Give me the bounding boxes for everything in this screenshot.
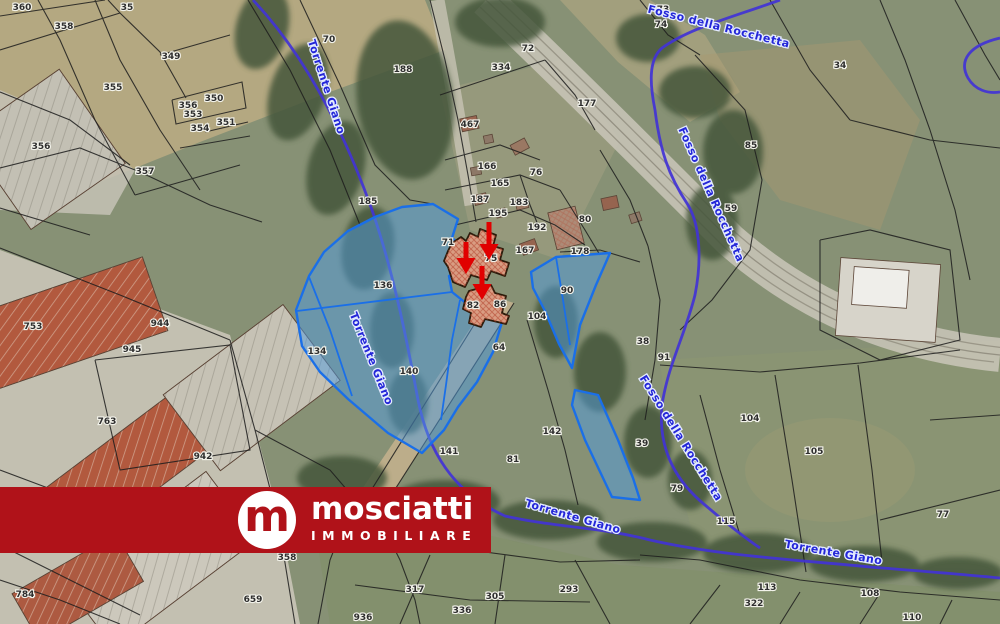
parcel-number-label: 86 bbox=[494, 300, 507, 310]
parcel-number-label: 185 bbox=[359, 197, 378, 207]
parcel-number-label: 322 bbox=[745, 599, 764, 609]
parcel-number-label: 356 bbox=[32, 142, 51, 152]
parcel-number-label: 34 bbox=[834, 61, 847, 71]
monogram-m: m bbox=[244, 495, 290, 539]
parcel-number-label: 942 bbox=[194, 452, 213, 462]
parcel-number-label: 334 bbox=[492, 63, 511, 73]
parcel-number-label: 183 bbox=[510, 198, 529, 208]
agency-name: mosciatti bbox=[311, 493, 477, 526]
parcel-number-label: 357 bbox=[136, 167, 155, 177]
parcel-number-label: 91 bbox=[658, 353, 671, 363]
parcel-number-label: 305 bbox=[486, 592, 505, 602]
parcel-number-label: 351 bbox=[217, 118, 236, 128]
parcel-number-label: 85 bbox=[745, 141, 758, 151]
parcel-number-label: 70 bbox=[323, 35, 336, 45]
parcel-number-label: 753 bbox=[24, 322, 43, 332]
parcel-number-label: 354 bbox=[191, 124, 210, 134]
parcel-number-label: 72 bbox=[522, 44, 535, 54]
parcel-number-label: 64 bbox=[493, 343, 506, 353]
parcel-number-label: 944 bbox=[151, 319, 170, 329]
agency-logo-monogram: m bbox=[238, 491, 296, 549]
parcel-number-label: 79 bbox=[671, 484, 684, 494]
agency-logo-banner: m mosciatti IMMOBILIARE bbox=[0, 487, 491, 553]
parcel-number-label: 167 bbox=[516, 246, 535, 256]
parcel-number-label: 74 bbox=[655, 20, 668, 30]
parcel-number-label: 936 bbox=[354, 613, 373, 623]
parcel-number-label: 293 bbox=[560, 585, 579, 595]
parcel-number-label: 104 bbox=[528, 312, 547, 322]
parcel-number-label: 142 bbox=[543, 427, 562, 437]
parcel-number-label: 81 bbox=[507, 455, 520, 465]
parcel-number-label: 104 bbox=[741, 414, 760, 424]
parcel-number-label: 75 bbox=[485, 254, 498, 264]
listing-image: 3603535834935535635335035435135735670188… bbox=[0, 0, 1000, 624]
parcel-number-label: 136 bbox=[374, 281, 393, 291]
parcel-number-label: 945 bbox=[123, 345, 142, 355]
parcel-number-label: 358 bbox=[55, 22, 74, 32]
parcel-number-label: 353 bbox=[184, 110, 203, 120]
parcel-number-label: 113 bbox=[758, 583, 777, 593]
parcel-number-label: 336 bbox=[453, 606, 472, 616]
agency-logo-text: mosciatti IMMOBILIARE bbox=[311, 493, 477, 543]
parcel-number-label: 80 bbox=[579, 215, 592, 225]
parcel-number-label: 192 bbox=[528, 223, 547, 233]
parcel-number-label: 35 bbox=[121, 3, 134, 13]
parcel-number-label: 115 bbox=[717, 517, 736, 527]
parcel-number-label: 355 bbox=[104, 83, 123, 93]
parcel-number-label: 140 bbox=[400, 367, 419, 377]
parcel-number-label: 188 bbox=[394, 65, 413, 75]
parcel-number-label: 349 bbox=[162, 52, 181, 62]
parcel-number-label: 784 bbox=[16, 590, 35, 600]
parcel-number-label: 165 bbox=[491, 179, 510, 189]
parcel-number-label: 108 bbox=[861, 589, 880, 599]
parcel-number-label: 77 bbox=[937, 510, 950, 520]
parcel-number-label: 350 bbox=[205, 94, 224, 104]
parcel-number-label: 317 bbox=[406, 585, 425, 595]
parcel-number-label: 187 bbox=[471, 195, 490, 205]
parcel-number-label: 177 bbox=[578, 99, 597, 109]
parcel-number-label: 110 bbox=[903, 613, 922, 623]
parcel-number-label: 39 bbox=[636, 439, 649, 449]
parcel-number-label: 82 bbox=[467, 301, 480, 311]
parcel-number-label: 358 bbox=[278, 553, 297, 563]
parcel-number-label: 71 bbox=[442, 238, 455, 248]
parcel-number-label: 178 bbox=[571, 247, 590, 257]
parcel-number-label: 105 bbox=[805, 447, 824, 457]
parcel-number-label: 134 bbox=[308, 347, 327, 357]
parcel-number-label: 38 bbox=[637, 337, 650, 347]
parcel-number-label: 90 bbox=[561, 286, 574, 296]
parcel-number-label: 467 bbox=[461, 120, 480, 130]
parcel-number-label: 166 bbox=[478, 162, 497, 172]
agency-subtitle: IMMOBILIARE bbox=[311, 528, 477, 543]
parcel-number-label: 763 bbox=[98, 417, 117, 427]
parcel-number-label: 76 bbox=[530, 168, 543, 178]
parcel-number-label: 195 bbox=[489, 209, 508, 219]
parcel-number-label: 659 bbox=[244, 595, 263, 605]
parcel-number-label: 360 bbox=[13, 3, 32, 13]
parcel-number-label: 141 bbox=[440, 447, 459, 457]
